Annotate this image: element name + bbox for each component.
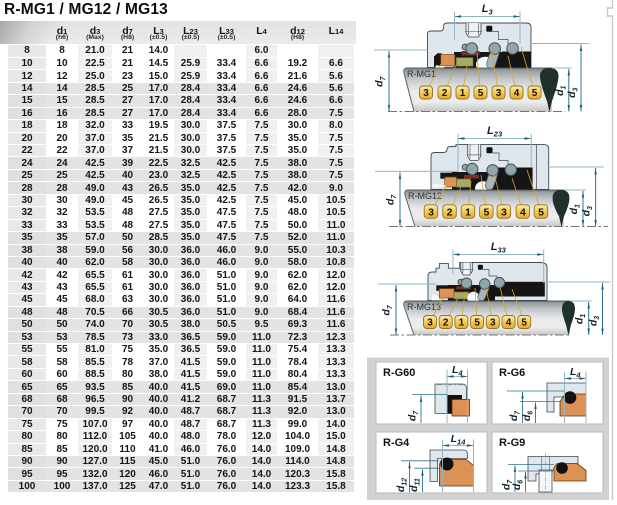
svg-text:4: 4: [514, 88, 520, 99]
svg-text:5: 5: [521, 318, 527, 329]
svg-text:5: 5: [538, 206, 544, 218]
svg-text:5: 5: [483, 206, 489, 218]
svg-text:1: 1: [465, 206, 471, 218]
svg-text:d3: d3: [566, 87, 580, 97]
svg-text:3: 3: [490, 318, 496, 329]
svg-text:5: 5: [478, 88, 484, 99]
svg-text:3: 3: [423, 88, 429, 99]
svg-text:L23: L23: [487, 125, 503, 139]
svg-text:d7: d7: [374, 75, 388, 86]
svg-text:3: 3: [427, 318, 433, 329]
svg-text:5: 5: [532, 88, 538, 99]
svg-text:R-G9: R-G9: [499, 437, 525, 449]
svg-text:2: 2: [442, 88, 448, 99]
svg-text:4: 4: [506, 318, 512, 329]
svg-text:3: 3: [501, 206, 507, 218]
svg-text:L3: L3: [482, 3, 494, 17]
svg-text:R-G4: R-G4: [383, 437, 410, 449]
svg-text:4: 4: [520, 206, 526, 218]
svg-text:1: 1: [460, 88, 466, 99]
svg-text:5: 5: [474, 318, 480, 329]
svg-text:2: 2: [443, 318, 449, 329]
svg-text:R-MG12: R-MG12: [408, 191, 442, 201]
svg-text:R-MG1: R-MG1: [407, 69, 436, 79]
svg-text:2: 2: [447, 206, 453, 218]
svg-text:1: 1: [459, 318, 465, 329]
svg-text:3: 3: [428, 206, 434, 218]
svg-text:R-G6: R-G6: [499, 367, 525, 379]
svg-text:L33: L33: [491, 241, 507, 255]
svg-text:d7: d7: [381, 304, 395, 315]
svg-text:d1: d1: [568, 204, 582, 214]
svg-text:d3: d3: [588, 316, 602, 326]
svg-text:d1: d1: [574, 314, 588, 324]
svg-text:d7: d7: [385, 194, 399, 205]
svg-text:R-G60: R-G60: [383, 367, 415, 379]
svg-text:3: 3: [496, 88, 502, 99]
